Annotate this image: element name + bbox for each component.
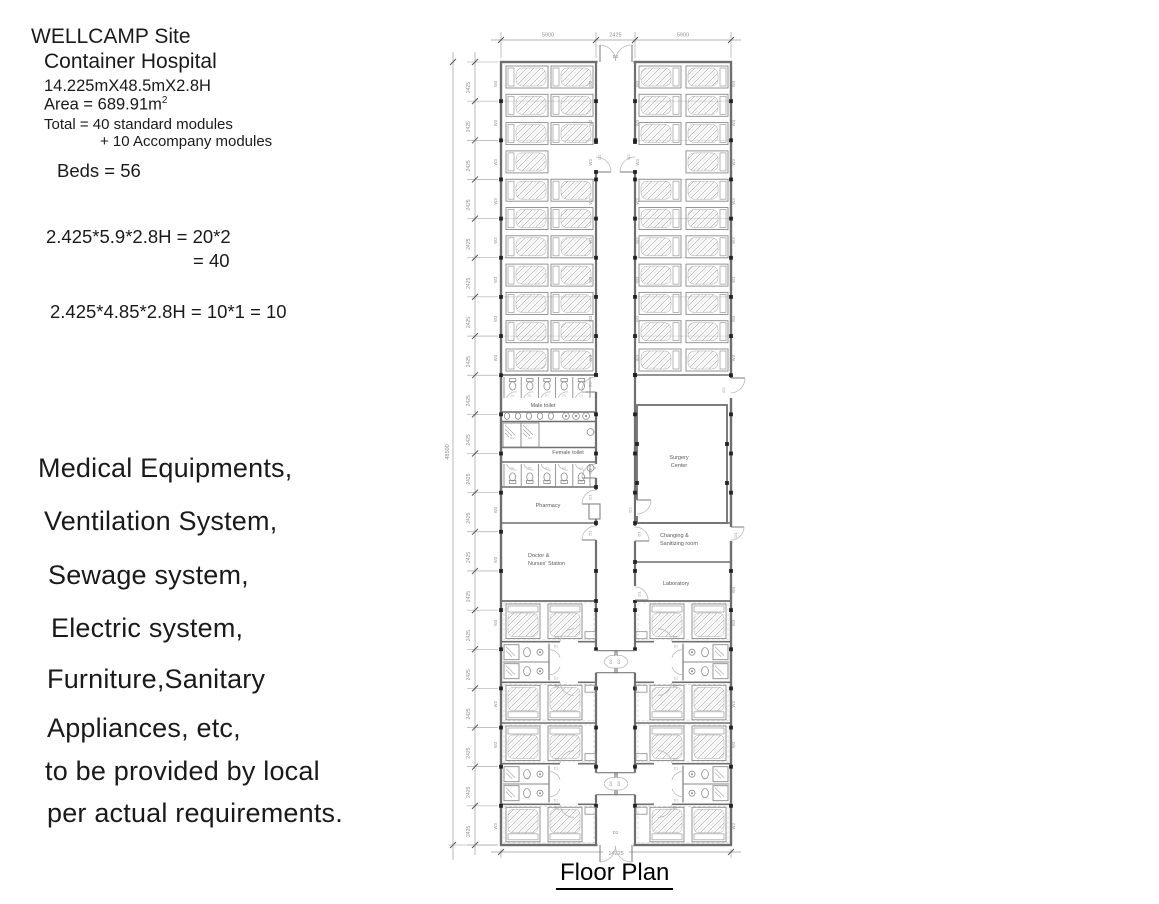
svg-text:2425: 2425 <box>466 591 472 602</box>
svg-text:W3: W3 <box>635 80 640 87</box>
svg-text:W3: W3 <box>493 619 498 626</box>
svg-text:D2: D2 <box>613 830 619 835</box>
svg-text:D1: D1 <box>674 799 679 803</box>
svg-text:14225: 14225 <box>608 851 623 857</box>
svg-text:D2: D2 <box>613 54 619 59</box>
area-line: Area = 689.91m2 <box>44 95 167 115</box>
svg-text:W3: W3 <box>588 354 593 361</box>
formula1-line1: 2.425*5.9*2.8H = 20*2 <box>46 226 231 248</box>
svg-text:D1: D1 <box>588 530 593 536</box>
svg-text:2425: 2425 <box>466 630 472 641</box>
svg-text:W3: W3 <box>731 276 736 283</box>
svg-text:W3: W3 <box>588 315 593 322</box>
svg-text:D2: D2 <box>555 806 560 810</box>
svg-text:D2: D2 <box>555 636 560 640</box>
svg-text:W3: W3 <box>493 276 498 283</box>
page: WELLCAMP Site Container Hospital 14.225m… <box>0 0 1159 904</box>
svg-text:2425: 2425 <box>466 747 472 758</box>
svg-text:D1: D1 <box>510 436 514 440</box>
svg-text:2425: 2425 <box>466 786 472 797</box>
provision-line: to be provided by local <box>45 756 320 787</box>
svg-text:D1: D1 <box>528 394 532 398</box>
svg-text:D1: D1 <box>674 645 679 649</box>
svg-text:D1: D1 <box>554 677 559 681</box>
svg-text:D1: D1 <box>733 532 738 538</box>
svg-text:2425: 2425 <box>466 82 472 93</box>
svg-text:2425: 2425 <box>466 669 472 680</box>
ward-beds <box>506 66 728 371</box>
svg-text:Changing &: Changing & <box>660 533 689 539</box>
svg-text:W3: W3 <box>588 237 593 244</box>
svg-text:5900: 5900 <box>542 33 554 39</box>
svg-text:D1: D1 <box>674 767 679 771</box>
svg-text:W3: W3 <box>493 822 498 829</box>
svg-text:D1: D1 <box>554 799 559 803</box>
svg-text:D2: D2 <box>609 781 613 786</box>
svg-text:5900: 5900 <box>677 33 689 39</box>
svg-text:D1: D1 <box>545 394 549 398</box>
svg-text:D2: D2 <box>597 154 602 160</box>
svg-text:D1: D1 <box>554 767 559 771</box>
svg-text:D1: D1 <box>637 531 642 537</box>
svg-text:D2: D2 <box>673 636 678 640</box>
svg-text:W3: W3 <box>731 80 736 87</box>
provision-line: Electric system, <box>51 613 243 644</box>
svg-text:W3: W3 <box>635 354 640 361</box>
svg-text:D2: D2 <box>721 387 726 393</box>
svg-text:2425: 2425 <box>466 512 472 523</box>
svg-text:D1: D1 <box>674 677 679 681</box>
svg-text:W3: W3 <box>635 158 640 165</box>
svg-text:W3: W3 <box>731 158 736 165</box>
svg-text:Pharmacy: Pharmacy <box>536 503 561 509</box>
svg-text:2425: 2425 <box>466 434 472 445</box>
svg-text:W3: W3 <box>493 354 498 361</box>
svg-text:Female toilet: Female toilet <box>552 450 584 456</box>
svg-text:W3: W3 <box>731 619 736 626</box>
svg-text:2425: 2425 <box>466 826 472 837</box>
svg-text:D1: D1 <box>579 394 583 398</box>
svg-text:2425: 2425 <box>466 317 472 328</box>
svg-text:D2: D2 <box>609 659 613 664</box>
svg-text:Nurses' Station: Nurses' Station <box>528 561 565 567</box>
floor-plan-caption: Floor Plan <box>556 859 673 890</box>
svg-text:D1: D1 <box>588 494 593 500</box>
svg-text:W3: W3 <box>493 315 498 322</box>
svg-text:D1: D1 <box>528 436 532 440</box>
svg-text:2425: 2425 <box>466 552 472 563</box>
svg-text:W3: W3 <box>635 237 640 244</box>
svg-text:2425: 2425 <box>466 395 472 406</box>
formula2: 2.425*4.85*2.8H = 10*1 = 10 <box>50 301 287 323</box>
total-line2: + 10 Accompany modules <box>100 133 272 150</box>
svg-text:W3: W3 <box>588 119 593 126</box>
svg-text:2425: 2425 <box>466 121 472 132</box>
svg-text:2425: 2425 <box>466 199 472 210</box>
size-line: 14.225mX48.5mX2.8H <box>44 77 211 96</box>
svg-text:W3: W3 <box>635 276 640 283</box>
svg-text:2425: 2425 <box>466 238 472 249</box>
svg-text:W3: W3 <box>493 119 498 126</box>
svg-text:W3: W3 <box>493 80 498 87</box>
svg-text:Male toilet: Male toilet <box>530 403 556 409</box>
svg-text:W3: W3 <box>588 80 593 87</box>
svg-text:Laboratory: Laboratory <box>663 581 690 587</box>
svg-text:D1: D1 <box>511 394 515 398</box>
provision-line: Appliances, etc, <box>47 713 241 744</box>
formula1-line2: = 40 <box>193 250 230 272</box>
svg-text:W3: W3 <box>731 586 736 593</box>
svg-text:W3: W3 <box>588 158 593 165</box>
svg-text:W3: W3 <box>493 506 498 513</box>
room-labels: PharmacyDoctor &Nurses' StationSurgeryCe… <box>528 455 698 587</box>
svg-text:W3: W3 <box>731 315 736 322</box>
svg-text:W3: W3 <box>635 119 640 126</box>
svg-text:D2: D2 <box>555 758 560 762</box>
svg-text:W3: W3 <box>493 198 498 205</box>
svg-text:2425: 2425 <box>466 160 472 171</box>
svg-text:W3: W3 <box>731 198 736 205</box>
provision-line: per actual requirements. <box>47 798 343 829</box>
svg-text:D1: D1 <box>554 645 559 649</box>
area-superscript: 2 <box>162 95 168 106</box>
svg-text:D2: D2 <box>617 659 621 664</box>
provision-line: Medical Equipments, <box>38 453 292 484</box>
svg-text:2425: 2425 <box>609 33 621 39</box>
svg-text:W3: W3 <box>731 822 736 829</box>
svg-text:W3: W3 <box>731 741 736 748</box>
svg-text:W3: W3 <box>588 198 593 205</box>
svg-text:Sanitizing room: Sanitizing room <box>660 541 698 547</box>
svg-text:D1: D1 <box>637 591 642 597</box>
svg-text:W3: W3 <box>635 198 640 205</box>
svg-text:W3: W3 <box>731 119 736 126</box>
svg-text:2425: 2425 <box>466 356 472 367</box>
svg-text:W3: W3 <box>493 158 498 165</box>
total-line1: Total = 40 standard modules <box>44 116 233 133</box>
title-line2: Container Hospital <box>44 50 217 74</box>
beds-line: Beds = 56 <box>57 160 141 182</box>
toilets: D1D1D1D1D1Male toiletD1D1Female toiletD1… <box>503 377 596 486</box>
svg-text:Surgery: Surgery <box>669 455 689 461</box>
svg-text:D2: D2 <box>617 781 621 786</box>
svg-text:W3: W3 <box>731 354 736 361</box>
svg-text:D2: D2 <box>628 507 633 513</box>
svg-text:W3: W3 <box>635 315 640 322</box>
title-line1: WELLCAMP Site <box>31 25 191 49</box>
svg-text:2425: 2425 <box>466 278 472 289</box>
svg-text:W3: W3 <box>588 276 593 283</box>
svg-text:D2: D2 <box>673 684 678 688</box>
svg-text:Center: Center <box>671 463 688 469</box>
svg-text:D2: D2 <box>673 806 678 810</box>
svg-text:D2: D2 <box>555 684 560 688</box>
provision-line: Furniture,Sanitary <box>47 664 265 695</box>
svg-text:W3: W3 <box>731 700 736 707</box>
svg-text:W3: W3 <box>731 237 736 244</box>
svg-text:D2: D2 <box>673 758 678 762</box>
floor-plan-drawing: 5900242559002425242524252425242524252425… <box>440 10 770 890</box>
svg-text:2425: 2425 <box>466 708 472 719</box>
svg-text:W3: W3 <box>493 700 498 707</box>
provision-line: Ventilation System, <box>44 506 277 537</box>
svg-text:W3: W3 <box>493 237 498 244</box>
svg-text:D1: D1 <box>562 394 566 398</box>
svg-text:48500: 48500 <box>445 444 451 459</box>
svg-text:2425: 2425 <box>466 473 472 484</box>
svg-text:Doctor &: Doctor & <box>528 553 550 559</box>
svg-text:D2: D2 <box>626 154 631 160</box>
svg-text:W3: W3 <box>493 741 498 748</box>
provision-line: Sewage system, <box>48 560 249 591</box>
svg-text:W3: W3 <box>493 556 498 563</box>
